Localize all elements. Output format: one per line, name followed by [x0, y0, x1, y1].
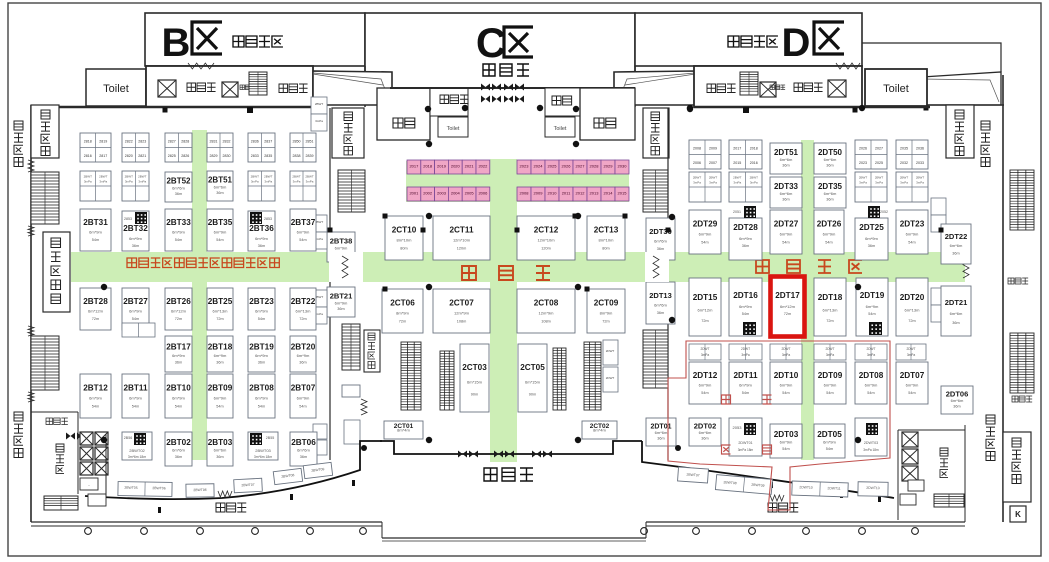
- svg-text:36m: 36m: [953, 404, 960, 408]
- svg-text:54m: 54m: [216, 238, 223, 242]
- svg-text:2CT08: 2CT08: [534, 299, 559, 308]
- svg-text:36m: 36m: [300, 455, 307, 459]
- svg-text:2BT20: 2BT20: [291, 343, 316, 352]
- svg-text:54m: 54m: [132, 404, 139, 408]
- svg-text:C: C: [476, 19, 506, 66]
- svg-text:2DT15: 2DT15: [693, 293, 718, 302]
- svg-text:2DWT: 2DWT: [606, 349, 615, 353]
- svg-text:6m*12m: 6m*12m: [171, 308, 187, 313]
- svg-text:54m: 54m: [132, 317, 139, 321]
- svg-text:36m: 36m: [258, 360, 265, 364]
- svg-text:6m*9m: 6m*9m: [89, 229, 102, 234]
- svg-text:54m: 54m: [742, 391, 749, 395]
- svg-text:6m*12m: 6m*12m: [88, 308, 104, 313]
- svg-text:3mPa: 3mPa: [306, 179, 314, 183]
- svg-text:2DWT: 2DWT: [741, 347, 750, 351]
- svg-text:2BT26: 2BT26: [166, 297, 191, 306]
- svg-text:2DT26: 2DT26: [817, 220, 842, 229]
- svg-text:2DT11: 2DT11: [733, 371, 758, 380]
- svg-text:36m: 36m: [175, 455, 182, 459]
- svg-text:2052: 2052: [880, 210, 888, 214]
- svg-text:6m*9m: 6m*9m: [865, 382, 878, 387]
- svg-text:36m: 36m: [657, 311, 664, 315]
- svg-text:2850: 2850: [293, 139, 301, 143]
- svg-text:2CT10: 2CT10: [392, 226, 417, 235]
- svg-text:2DT05: 2DT05: [817, 430, 842, 439]
- svg-text:72m: 72m: [216, 317, 223, 321]
- svg-text:2029: 2029: [604, 164, 614, 169]
- svg-text:72m: 72m: [784, 312, 791, 316]
- svg-text:6m*9m: 6m*9m: [906, 232, 919, 237]
- svg-text:2830: 2830: [223, 154, 231, 158]
- svg-text:2DWT11: 2DWT11: [827, 486, 840, 490]
- svg-text:2DWT: 2DWT: [700, 347, 709, 351]
- svg-text:54m: 54m: [92, 404, 99, 408]
- svg-text:2816: 2816: [84, 154, 92, 158]
- svg-text:72m: 72m: [92, 317, 99, 321]
- svg-text:2BWT: 2BWT: [99, 175, 108, 179]
- svg-text:36m: 36m: [337, 307, 344, 311]
- svg-text:36m: 36m: [868, 244, 875, 248]
- svg-text:2009: 2009: [534, 191, 544, 196]
- svg-text:2839: 2839: [306, 154, 314, 158]
- svg-text:2DT35: 2DT35: [818, 182, 843, 191]
- svg-text:36m: 36m: [216, 455, 223, 459]
- svg-text:36m: 36m: [826, 164, 833, 168]
- svg-text:2BWT: 2BWT: [733, 176, 742, 180]
- svg-text:3mPa: 3mPa: [138, 179, 146, 183]
- svg-text:2010: 2010: [548, 191, 558, 196]
- svg-text:6m*6m: 6m*6m: [172, 448, 185, 453]
- svg-text:3mPa: 3mPa: [916, 180, 924, 184]
- svg-text:2CT03: 2CT03: [462, 363, 487, 372]
- svg-text:6m*9m: 6m*9m: [823, 232, 836, 237]
- svg-text:2036: 2036: [916, 146, 924, 150]
- svg-text:2CT13: 2CT13: [594, 226, 619, 235]
- svg-text:2DT09: 2DT09: [818, 371, 843, 380]
- svg-text:2027: 2027: [576, 164, 586, 169]
- svg-text:2837: 2837: [264, 139, 272, 143]
- svg-text:2025: 2025: [875, 161, 883, 165]
- svg-text:2DT13: 2DT13: [649, 291, 672, 300]
- svg-text:6m*6m: 6m*6m: [780, 191, 793, 196]
- svg-text:2006: 2006: [693, 161, 701, 165]
- svg-text:Toilet: Toilet: [447, 126, 460, 132]
- svg-text:6m*9m: 6m*9m: [865, 236, 878, 241]
- svg-text:2DT27: 2DT27: [774, 220, 799, 229]
- svg-text:2DWT: 2DWT: [781, 347, 790, 351]
- svg-text:2838: 2838: [293, 154, 301, 158]
- svg-text:2851: 2851: [306, 139, 314, 143]
- svg-text:2053: 2053: [733, 425, 743, 430]
- svg-text:2DT51: 2DT51: [774, 148, 799, 157]
- svg-text:Toilet: Toilet: [103, 83, 129, 95]
- svg-text:2028: 2028: [590, 164, 600, 169]
- svg-text:2831: 2831: [210, 139, 218, 143]
- svg-text:2013: 2013: [590, 191, 600, 196]
- svg-text:3mPa: 3mPa: [293, 179, 301, 183]
- svg-text:3mPa 18m: 3mPa 18m: [863, 448, 879, 452]
- svg-text:2026: 2026: [859, 146, 867, 150]
- svg-text:2016: 2016: [750, 161, 758, 165]
- svg-text:2015: 2015: [733, 161, 741, 165]
- svg-text:3mPa: 3mPa: [709, 180, 717, 184]
- svg-text:3mPa: 3mPa: [701, 353, 710, 357]
- svg-text:2BWT: 2BWT: [292, 175, 301, 179]
- svg-text:6m*6m: 6m*6m: [824, 157, 837, 162]
- svg-text:2BT28: 2BT28: [83, 297, 108, 306]
- svg-text:90m: 90m: [529, 393, 536, 397]
- svg-text:36m: 36m: [782, 164, 789, 168]
- svg-text:2DWT03: 2DWT03: [864, 441, 878, 445]
- svg-text:54m: 54m: [825, 240, 832, 244]
- svg-text:2BT31: 2BT31: [83, 218, 108, 227]
- svg-text:6m*6m: 6m*6m: [172, 185, 185, 190]
- svg-text:72m: 72m: [299, 317, 306, 321]
- svg-text:54m: 54m: [782, 240, 789, 244]
- svg-text:54m: 54m: [701, 391, 708, 395]
- svg-text:2022: 2022: [478, 164, 488, 169]
- svg-text:6m*9m: 6m*9m: [335, 300, 348, 305]
- svg-text:2853: 2853: [264, 217, 272, 221]
- svg-text:2BT07: 2BT07: [291, 384, 316, 393]
- svg-text:8m*9m: 8m*9m: [396, 311, 409, 316]
- svg-text:2020: 2020: [451, 164, 461, 169]
- svg-text:6m*6m: 6m*6m: [654, 302, 667, 307]
- svg-text:2BWT: 2BWT: [138, 175, 147, 179]
- svg-text:2032: 2032: [900, 161, 908, 165]
- svg-text:2BT38: 2BT38: [330, 236, 353, 245]
- svg-text:3mPa: 3mPa: [826, 353, 835, 357]
- svg-text:2826: 2826: [181, 154, 189, 158]
- svg-text:36m: 36m: [952, 321, 959, 325]
- svg-text:3mPa: 3mPa: [315, 119, 323, 123]
- svg-text:2027: 2027: [875, 146, 883, 150]
- svg-text:36m: 36m: [952, 251, 959, 255]
- svg-text:2BT18: 2BT18: [208, 343, 233, 352]
- svg-text:54m: 54m: [175, 238, 182, 242]
- svg-text:2BWT: 2BWT: [900, 176, 909, 180]
- svg-text:2DWT: 2DWT: [606, 376, 615, 380]
- svg-text:2BWT: 2BWT: [693, 176, 702, 180]
- svg-text:6m*15m: 6m*15m: [525, 379, 541, 384]
- svg-text:2DT19: 2DT19: [860, 291, 885, 300]
- svg-text:36m: 36m: [299, 360, 306, 364]
- svg-text:2BWT07: 2BWT07: [241, 483, 254, 488]
- svg-text:6m*9m: 6m*9m: [780, 232, 793, 237]
- svg-text:54m: 54m: [782, 391, 789, 395]
- svg-text:2008: 2008: [520, 191, 530, 196]
- svg-text:6m*9m: 6m*9m: [739, 382, 752, 387]
- svg-text:2CT11: 2CT11: [449, 226, 474, 235]
- svg-text:2BT36: 2BT36: [249, 224, 274, 233]
- svg-text:2DT20: 2DT20: [900, 293, 925, 302]
- svg-text:Toilet: Toilet: [554, 126, 567, 132]
- svg-text:36m: 36m: [701, 436, 708, 440]
- svg-text:2CT12: 2CT12: [534, 226, 559, 235]
- svg-text:8m*9m: 8m*9m: [600, 311, 613, 316]
- svg-text:2825: 2825: [168, 154, 176, 158]
- svg-text:2BT25: 2BT25: [208, 297, 233, 306]
- svg-text:120m: 120m: [541, 246, 551, 250]
- svg-text:2CT05: 2CT05: [520, 363, 545, 372]
- svg-text:2821: 2821: [138, 154, 146, 158]
- svg-text:2004: 2004: [451, 191, 461, 196]
- svg-text:6m*9m: 6m*9m: [297, 396, 310, 401]
- svg-text:6m*12m: 6m*12m: [698, 308, 714, 313]
- svg-text:6m*12m: 6m*12m: [780, 304, 796, 309]
- svg-text:6m*9m: 6m*9m: [129, 236, 142, 241]
- svg-text:54m: 54m: [92, 238, 99, 242]
- svg-text:54m: 54m: [258, 404, 265, 408]
- svg-text:2BWT: 2BWT: [916, 176, 925, 180]
- svg-text:2BT32: 2BT32: [123, 224, 148, 233]
- svg-text:2014: 2014: [604, 191, 614, 196]
- svg-text:120m: 120m: [457, 246, 467, 250]
- svg-text:6m*6m: 6m*6m: [214, 184, 227, 189]
- svg-text:2030: 2030: [618, 164, 628, 169]
- svg-text:2835: 2835: [264, 154, 272, 158]
- svg-text:2BT22: 2BT22: [291, 297, 316, 306]
- svg-text:6m*9m: 6m*9m: [335, 245, 348, 250]
- svg-text:2DT29: 2DT29: [693, 220, 718, 229]
- svg-text:2023: 2023: [520, 164, 530, 169]
- svg-text:6m*9m: 6m*9m: [780, 382, 793, 387]
- svg-text:2033: 2033: [916, 161, 924, 165]
- svg-text:3mPa: 3mPa: [867, 353, 876, 357]
- svg-text:54m: 54m: [216, 404, 223, 408]
- svg-text:2BWT: 2BWT: [315, 102, 324, 106]
- svg-text:2DT03: 2DT03: [774, 430, 799, 439]
- svg-text:3mPa: 3mPa: [733, 180, 741, 184]
- svg-text:6m*9m: 6m*9m: [214, 229, 227, 234]
- svg-text:54m: 54m: [868, 312, 875, 316]
- svg-text:2B55: 2B55: [266, 436, 274, 440]
- svg-text:2BT06: 2BT06: [291, 438, 316, 447]
- svg-text:2DT12: 2DT12: [693, 371, 718, 380]
- svg-text:6m*6m: 6m*6m: [780, 157, 793, 162]
- svg-text:2832: 2832: [223, 139, 231, 143]
- svg-text:2BWT: 2BWT: [750, 176, 759, 180]
- svg-text:54m: 54m: [867, 391, 874, 395]
- svg-text:2DT28: 2DT28: [733, 223, 758, 232]
- svg-text:12m*10m: 12m*10m: [537, 238, 555, 243]
- svg-text:3m*6m 18m: 3m*6m 18m: [254, 455, 272, 459]
- svg-text:36m: 36m: [657, 436, 664, 440]
- svg-text:54m: 54m: [258, 317, 265, 321]
- svg-text:6m*13m: 6m*13m: [213, 308, 229, 313]
- svg-text:2823: 2823: [138, 139, 146, 143]
- svg-text:80m: 80m: [602, 246, 609, 250]
- svg-text:6m*9m: 6m*9m: [906, 382, 919, 387]
- svg-text:6m*9m: 6m*9m: [172, 353, 185, 358]
- svg-text:2DWT10: 2DWT10: [799, 485, 813, 489]
- svg-text:2025: 2025: [548, 164, 558, 169]
- svg-text:2035: 2035: [900, 146, 908, 150]
- svg-text:2BT11: 2BT11: [123, 384, 148, 393]
- svg-text:2019: 2019: [437, 164, 447, 169]
- svg-text:6m*6m: 6m*6m: [214, 448, 227, 453]
- svg-text:6m*6m: 6m*6m: [950, 311, 963, 316]
- svg-text:2051: 2051: [733, 210, 741, 214]
- svg-text:6m*6m: 6m*6m: [655, 430, 668, 435]
- svg-text:2827: 2827: [168, 139, 176, 143]
- svg-text:6m*13m: 6m*13m: [823, 308, 839, 313]
- svg-text:6m*9m: 6m*9m: [739, 236, 752, 241]
- svg-text:2BT51: 2BT51: [208, 175, 233, 184]
- svg-text:2005: 2005: [465, 191, 475, 196]
- svg-text:3mPa: 3mPa: [99, 179, 107, 183]
- svg-text:2BT10: 2BT10: [166, 384, 191, 393]
- svg-text:2BT09: 2BT09: [208, 384, 233, 393]
- svg-text:2BT23: 2BT23: [249, 297, 274, 306]
- svg-text:54m: 54m: [701, 240, 708, 244]
- svg-text:12m*9m: 12m*9m: [539, 311, 555, 316]
- svg-text:2BWT: 2BWT: [859, 176, 868, 180]
- svg-text:2BWT: 2BWT: [264, 175, 273, 179]
- svg-text:2BWT: 2BWT: [84, 175, 93, 179]
- svg-text:..: ..: [88, 482, 90, 487]
- svg-text:6m*9m: 6m*9m: [739, 304, 752, 309]
- svg-text:36m: 36m: [175, 192, 182, 196]
- svg-text:B: B: [162, 21, 191, 65]
- svg-text:2BT12: 2BT12: [83, 384, 108, 393]
- svg-text:6m*9m: 6m*9m: [297, 229, 310, 234]
- svg-text:2822: 2822: [125, 139, 133, 143]
- svg-text:2BT21: 2BT21: [330, 291, 353, 300]
- svg-text:2BT08: 2BT08: [249, 384, 274, 393]
- svg-text:108m: 108m: [457, 319, 467, 323]
- svg-text:3m*6m 18m: 3m*6m 18m: [128, 455, 146, 459]
- svg-text:72m: 72m: [175, 317, 182, 321]
- svg-text:6m*9m: 6m*9m: [172, 396, 185, 401]
- svg-text:6m*9m: 6m*9m: [866, 304, 879, 309]
- svg-text:2BWT02: 2BWT02: [129, 448, 145, 453]
- svg-text:6m*9m: 6m*9m: [823, 440, 836, 445]
- svg-text:2DT16: 2DT16: [733, 291, 758, 300]
- svg-text:2BT17: 2BT17: [166, 343, 191, 352]
- svg-text:36m: 36m: [175, 360, 182, 364]
- svg-text:3mPa: 3mPa: [900, 180, 908, 184]
- svg-text:2CT07: 2CT07: [449, 299, 474, 308]
- svg-text:3mPa: 3mPa: [125, 179, 133, 183]
- svg-text:36m: 36m: [216, 360, 223, 364]
- svg-text:3mPa: 3mPa: [264, 179, 272, 183]
- svg-text:2011: 2011: [562, 191, 571, 196]
- svg-text:2DT23: 2DT23: [900, 220, 925, 229]
- svg-text:2BT27: 2BT27: [123, 297, 148, 306]
- svg-text:2DWT01: 2DWT01: [738, 441, 752, 445]
- svg-text:36m: 36m: [258, 244, 265, 248]
- svg-text:2017: 2017: [733, 146, 741, 150]
- svg-text:72m: 72m: [826, 319, 833, 323]
- svg-text:36m: 36m: [216, 191, 223, 195]
- svg-text:2007: 2007: [709, 161, 717, 165]
- svg-text:2DT50: 2DT50: [818, 148, 843, 157]
- svg-text:2DT21: 2DT21: [945, 298, 968, 307]
- svg-text:6m*9m: 6m*9m: [255, 308, 268, 313]
- svg-text:2BWT06: 2BWT06: [152, 486, 165, 490]
- svg-text:6m*9m: 6m*9m: [172, 229, 185, 234]
- svg-text:2021: 2021: [465, 164, 475, 169]
- svg-text:2BWT: 2BWT: [709, 176, 718, 180]
- svg-text:54m: 54m: [826, 391, 833, 395]
- svg-text:36m: 36m: [782, 198, 789, 202]
- svg-text:2BWT03: 2BWT03: [255, 448, 271, 453]
- svg-text:6m*6m: 6m*6m: [699, 430, 712, 435]
- svg-text:3mPa 18m: 3mPa 18m: [738, 448, 754, 452]
- svg-text:2DT10: 2DT10: [774, 371, 799, 380]
- svg-text:72m: 72m: [908, 319, 915, 323]
- svg-text:2BWT05: 2BWT05: [124, 486, 137, 490]
- svg-text:3mPa: 3mPa: [875, 180, 883, 184]
- svg-text:6m*9m: 6m*9m: [129, 396, 142, 401]
- svg-text:6m*6m: 6m*6m: [297, 448, 310, 453]
- svg-text:6m*15m: 6m*15m: [467, 379, 483, 384]
- svg-text:6m*9m: 6m*9m: [214, 353, 227, 358]
- svg-text:6m*9m: 6m*9m: [255, 353, 268, 358]
- svg-text:12m*9m: 12m*9m: [454, 311, 470, 316]
- svg-text:3mPa: 3mPa: [750, 180, 758, 184]
- svg-text:2BT19: 2BT19: [249, 343, 274, 352]
- svg-text:54m: 54m: [742, 312, 749, 316]
- svg-text:2BT33: 2BT33: [166, 218, 191, 227]
- svg-text:2BT02: 2BT02: [166, 438, 191, 447]
- svg-text:2DWT13: 2DWT13: [866, 486, 880, 490]
- svg-text:80m: 80m: [400, 246, 407, 250]
- svg-text:6m*6m: 6m*6m: [824, 191, 837, 196]
- svg-text:2003: 2003: [437, 191, 447, 196]
- svg-text:2DT08: 2DT08: [859, 371, 884, 380]
- svg-text:12m*10m: 12m*10m: [453, 238, 471, 243]
- svg-text:36m: 36m: [132, 244, 139, 248]
- svg-text:6m*9m: 6m*9m: [214, 396, 227, 401]
- svg-text:2BT35: 2BT35: [208, 218, 233, 227]
- svg-text:2001: 2001: [409, 191, 419, 196]
- svg-text:6m*9m: 6m*9m: [89, 396, 102, 401]
- svg-text:54m: 54m: [908, 391, 915, 395]
- svg-text:2BWT: 2BWT: [251, 175, 260, 179]
- svg-text:2DWT: 2DWT: [906, 347, 915, 351]
- svg-text:6m*9m: 6m*9m: [699, 382, 712, 387]
- svg-text:3mPa: 3mPa: [907, 353, 916, 357]
- svg-text:54m: 54m: [299, 404, 306, 408]
- svg-text:2DT22: 2DT22: [945, 232, 968, 241]
- svg-text:3mPa: 3mPa: [251, 179, 259, 183]
- svg-text:2002: 2002: [423, 191, 433, 196]
- svg-text:6m*6m: 6m*6m: [654, 238, 667, 243]
- svg-text:2DWT: 2DWT: [866, 347, 875, 351]
- svg-text:72m: 72m: [602, 319, 609, 323]
- svg-text:2DT25: 2DT25: [859, 223, 884, 232]
- svg-text:2BWT06: 2BWT06: [193, 488, 206, 492]
- svg-text:2009: 2009: [709, 146, 717, 150]
- svg-text:36m: 36m: [826, 198, 833, 202]
- svg-text:2817: 2817: [99, 154, 107, 158]
- svg-text:3mPa: 3mPa: [782, 353, 791, 357]
- svg-text:72m: 72m: [399, 319, 406, 323]
- svg-text:2853: 2853: [124, 217, 132, 221]
- svg-text:2018: 2018: [423, 164, 433, 169]
- svg-text:2BWT: 2BWT: [875, 176, 884, 180]
- svg-text:2BWT: 2BWT: [125, 175, 134, 179]
- svg-text:3mPa: 3mPa: [693, 180, 701, 184]
- svg-text:2828: 2828: [181, 139, 189, 143]
- svg-text:2BWT: 2BWT: [305, 175, 314, 179]
- svg-text:8m*10m: 8m*10m: [397, 238, 413, 243]
- svg-text:54m: 54m: [299, 238, 306, 242]
- svg-text:8m*4m: 8m*4m: [397, 427, 410, 432]
